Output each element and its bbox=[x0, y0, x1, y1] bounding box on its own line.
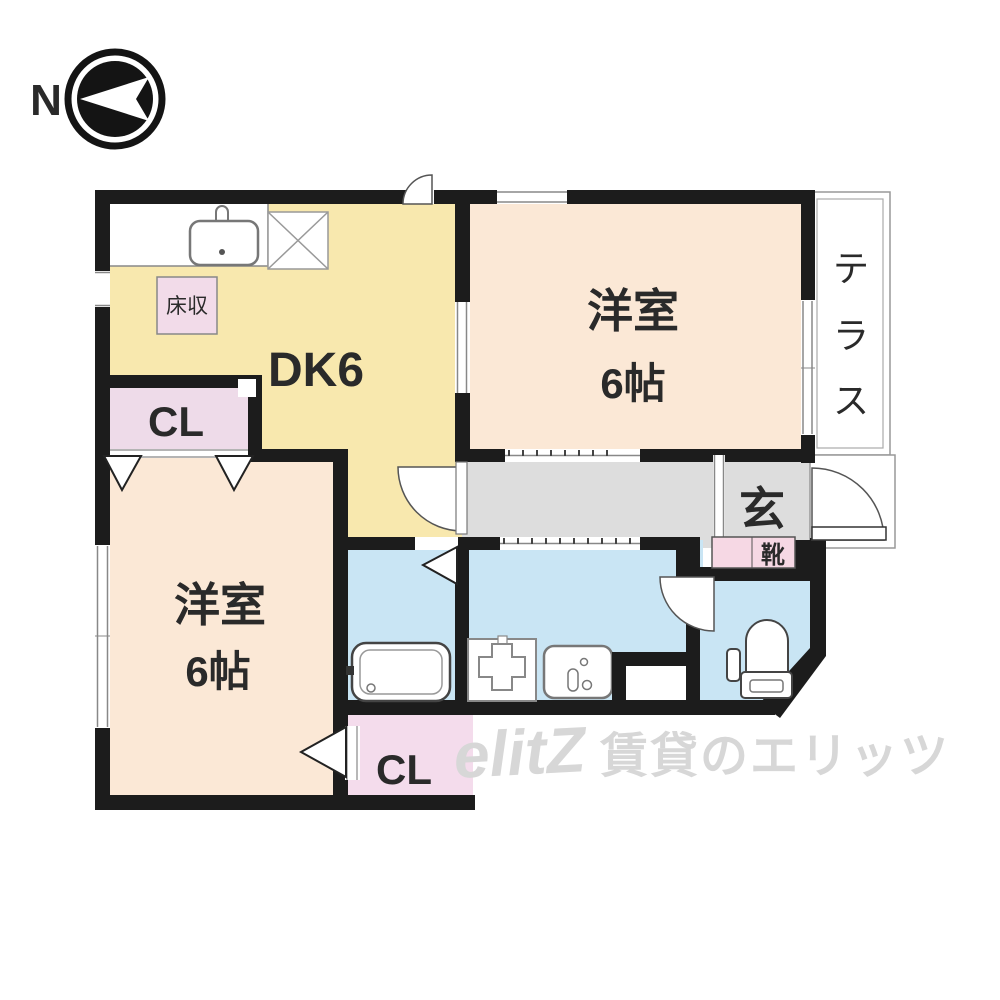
bathroom-door-gap bbox=[415, 537, 458, 550]
watermark-logo: elitZ bbox=[452, 713, 590, 792]
shoe-cabinet: 靴 bbox=[712, 537, 795, 569]
washroom-alcove bbox=[612, 652, 686, 700]
western-room-bottom-size: 6帖 bbox=[185, 648, 250, 695]
watermark: elitZ 賃貸のエリッツ bbox=[452, 713, 950, 792]
dk-door-leaf bbox=[456, 462, 467, 534]
dk-service-door-swing bbox=[403, 175, 432, 204]
terrace-label: テ ラ ス bbox=[833, 248, 869, 421]
western-room-top-label: 洋室 bbox=[587, 285, 679, 337]
wall-left-mid bbox=[95, 455, 110, 547]
floorplan-drawing: DK6 床収 洋室 6帖 洋室 6帖 CL CL 玄 靴 テ ラ ス elitZ… bbox=[0, 0, 1000, 1000]
terrace-char-1: テ bbox=[833, 248, 869, 289]
closet-left-label: CL bbox=[148, 398, 204, 445]
wall-bottom bbox=[95, 795, 475, 810]
wall-dk-bedroom-divider-upper bbox=[455, 197, 470, 302]
wall-right-lower bbox=[810, 538, 826, 656]
washing-machine-pan-icon bbox=[468, 636, 536, 701]
floorplan-page: DK6 床収 洋室 6帖 洋室 6帖 CL CL 玄 靴 テ ラ ス elitZ… bbox=[0, 0, 1000, 1000]
floor-storage-label: 床収 bbox=[166, 295, 208, 318]
watermark-text: 賃貸のエリッツ bbox=[599, 730, 950, 783]
refrigerator-space-icon bbox=[268, 212, 328, 269]
compass-north-label: N bbox=[30, 76, 62, 125]
shoe-cabinet-label: 靴 bbox=[761, 542, 785, 569]
dk-label: DK6 bbox=[268, 344, 364, 397]
entrance-door-leaf bbox=[812, 527, 886, 540]
western-room-top-size: 6帖 bbox=[600, 360, 665, 407]
compass: N bbox=[30, 52, 162, 146]
western-room-bottom-label: 洋室 bbox=[174, 579, 266, 631]
entrance-label: 玄 bbox=[739, 483, 785, 535]
closet-bottom-label: CL bbox=[376, 746, 432, 793]
terrace-char-2: ラ bbox=[833, 315, 869, 356]
wall-dk-bedroom-divider-lower bbox=[455, 393, 470, 455]
closet-wall-notch bbox=[238, 379, 256, 397]
terrace-char-3: ス bbox=[833, 380, 869, 421]
wall-left-upper bbox=[95, 190, 110, 462]
wall-closet-left-top bbox=[95, 375, 262, 388]
window-dk-left bbox=[95, 271, 110, 307]
wash-basin-icon bbox=[544, 646, 612, 698]
bathtub-icon bbox=[346, 643, 450, 701]
